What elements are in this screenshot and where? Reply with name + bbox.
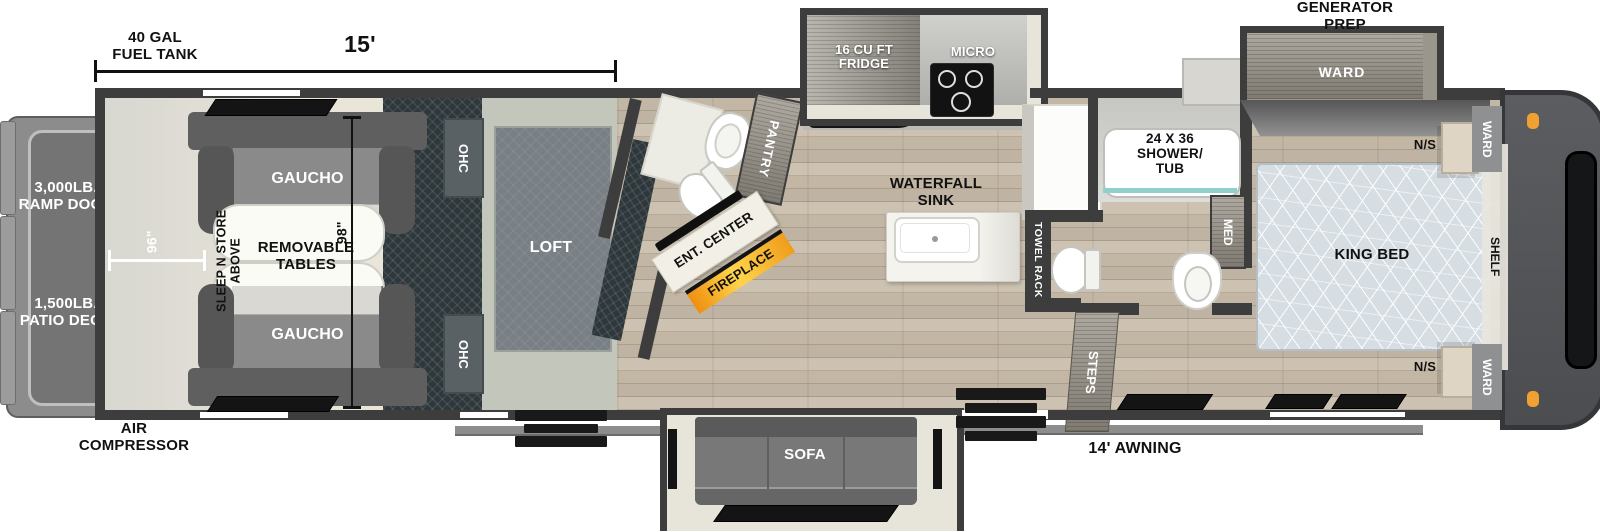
garage-door-gap xyxy=(460,412,508,418)
waterfall-sink xyxy=(894,217,980,263)
sleep-n-store-label: SLEEP N STORE ABOVE xyxy=(215,196,243,326)
ward-top: WARD xyxy=(1472,106,1502,172)
ward-slide-label: WARD xyxy=(1319,65,1366,80)
dim-96-tick-right xyxy=(203,250,206,271)
garage-top-wall-gap xyxy=(203,90,300,96)
slide-window-bottom xyxy=(713,505,899,522)
slide-window-right xyxy=(933,429,942,489)
entry-steps xyxy=(956,388,1046,441)
bath-bottom-wall-right xyxy=(1212,303,1252,315)
garage-top-wall xyxy=(95,88,622,98)
ohc-top-label: OHC xyxy=(456,144,471,173)
garage-bottom-wall-gap xyxy=(200,412,288,418)
bath-toilet xyxy=(1051,244,1101,292)
shower-tub-label: 24 X 36 SHOWER/ TUB xyxy=(1108,132,1232,177)
dim-15ft-tick-right xyxy=(614,60,617,82)
ohc-cabinet-top: OHC xyxy=(443,118,484,198)
king-bed-label: KING BED xyxy=(1322,247,1422,264)
ward-slide-shelf xyxy=(1182,58,1246,106)
ohc-bottom-label: OHC xyxy=(456,340,471,369)
ns-top-label: N/S xyxy=(1408,138,1442,152)
awning-label: 14' AWNING xyxy=(1080,440,1190,458)
dim-98-tick-bottom xyxy=(343,406,361,409)
garage-entry-steps xyxy=(515,410,607,447)
slide-window-left xyxy=(668,429,677,489)
gaucho-bottom-arm-right xyxy=(379,284,415,372)
burner-icon xyxy=(965,70,983,88)
bath-sink xyxy=(1172,252,1222,310)
gaucho-top-platform xyxy=(188,112,427,150)
ward-bottom: WARD xyxy=(1472,344,1502,410)
cap-window xyxy=(1565,151,1597,369)
pantry-label: PANTRY xyxy=(756,119,783,179)
sofa-slide: SOFA xyxy=(660,408,964,531)
towel-rack-bottom-wall xyxy=(1025,298,1081,312)
bedroom-bottom-window xyxy=(1331,394,1407,409)
sofa: SOFA xyxy=(695,417,917,503)
dim-98-tick-top xyxy=(343,116,361,119)
living-bottom-window xyxy=(1117,394,1213,410)
fridge-label: 16 CU FT FRIDGE xyxy=(809,43,919,72)
bedroom-bottom-wall-gap xyxy=(1270,412,1405,417)
dim-15ft-label: 15' xyxy=(330,32,390,57)
garage-top-window xyxy=(204,99,337,116)
cooktop xyxy=(930,63,994,117)
micro-label: MICRO xyxy=(927,45,1019,59)
ward-top-label: WARD xyxy=(1480,121,1494,158)
rv-floorplan: 3,000LB. RAMP DOOR 1,500LB. PATIO DECK L… xyxy=(0,0,1600,531)
marker-light-bottom xyxy=(1527,391,1539,407)
rear-wall xyxy=(95,88,105,420)
dim-98-label: 98" xyxy=(334,215,349,251)
generator-prep-label: GENERATOR PREP xyxy=(1285,0,1405,33)
towel-rack-wall: TOWEL RACK xyxy=(1025,210,1051,310)
drain-icon xyxy=(932,236,938,242)
ward-bottom-label: WARD xyxy=(1480,359,1494,396)
gaucho-top-label: GAUCHO xyxy=(250,170,365,188)
waterfall-sink-label: WATERFALL SINK xyxy=(866,176,1006,209)
steps-label: STEPS xyxy=(1083,351,1102,394)
loft-label: LOFT xyxy=(516,239,586,257)
dim-98-line xyxy=(351,117,353,409)
gaucho-top-arm-right xyxy=(379,146,415,234)
ns-bottom-label: N/S xyxy=(1408,360,1442,374)
marker-light-top xyxy=(1527,113,1539,129)
dim-96-label: 96" xyxy=(144,224,159,260)
sofa-label: SOFA xyxy=(755,447,855,464)
fuel-tank-label: 40 GAL FUEL TANK xyxy=(95,30,215,63)
dim-15ft-tick-left xyxy=(94,60,97,82)
garage-bottom-window xyxy=(207,396,339,412)
bedroom-bottom-window xyxy=(1265,394,1333,409)
burner-icon xyxy=(938,70,956,88)
med-label: MED xyxy=(1221,219,1235,246)
burner-icon xyxy=(951,92,971,112)
ohc-cabinet-bottom: OHC xyxy=(443,314,484,394)
front-cap xyxy=(1500,90,1600,430)
shelf-label: SHELF xyxy=(1488,237,1502,276)
dim-15ft-line xyxy=(95,70,617,73)
shower-glass xyxy=(1103,188,1237,193)
dim-96-tick-left xyxy=(108,250,111,271)
towel-rack-label: TOWEL RACK xyxy=(1032,222,1044,298)
kitchen-bath-top-wall xyxy=(1030,88,1092,98)
air-compressor-label: AIR COMPRESSOR xyxy=(74,421,194,454)
bed-shelf: SHELF xyxy=(1482,144,1508,370)
shower-room-left-wall xyxy=(1088,88,1098,210)
kitchen-slide: 16 CU FT FRIDGE MICRO xyxy=(800,8,1048,126)
removable-tables-label: REMOVABLE TABLES xyxy=(232,240,380,273)
gaucho-bottom-label: GAUCHO xyxy=(250,326,365,344)
gaucho-bottom-cushion xyxy=(232,286,381,315)
